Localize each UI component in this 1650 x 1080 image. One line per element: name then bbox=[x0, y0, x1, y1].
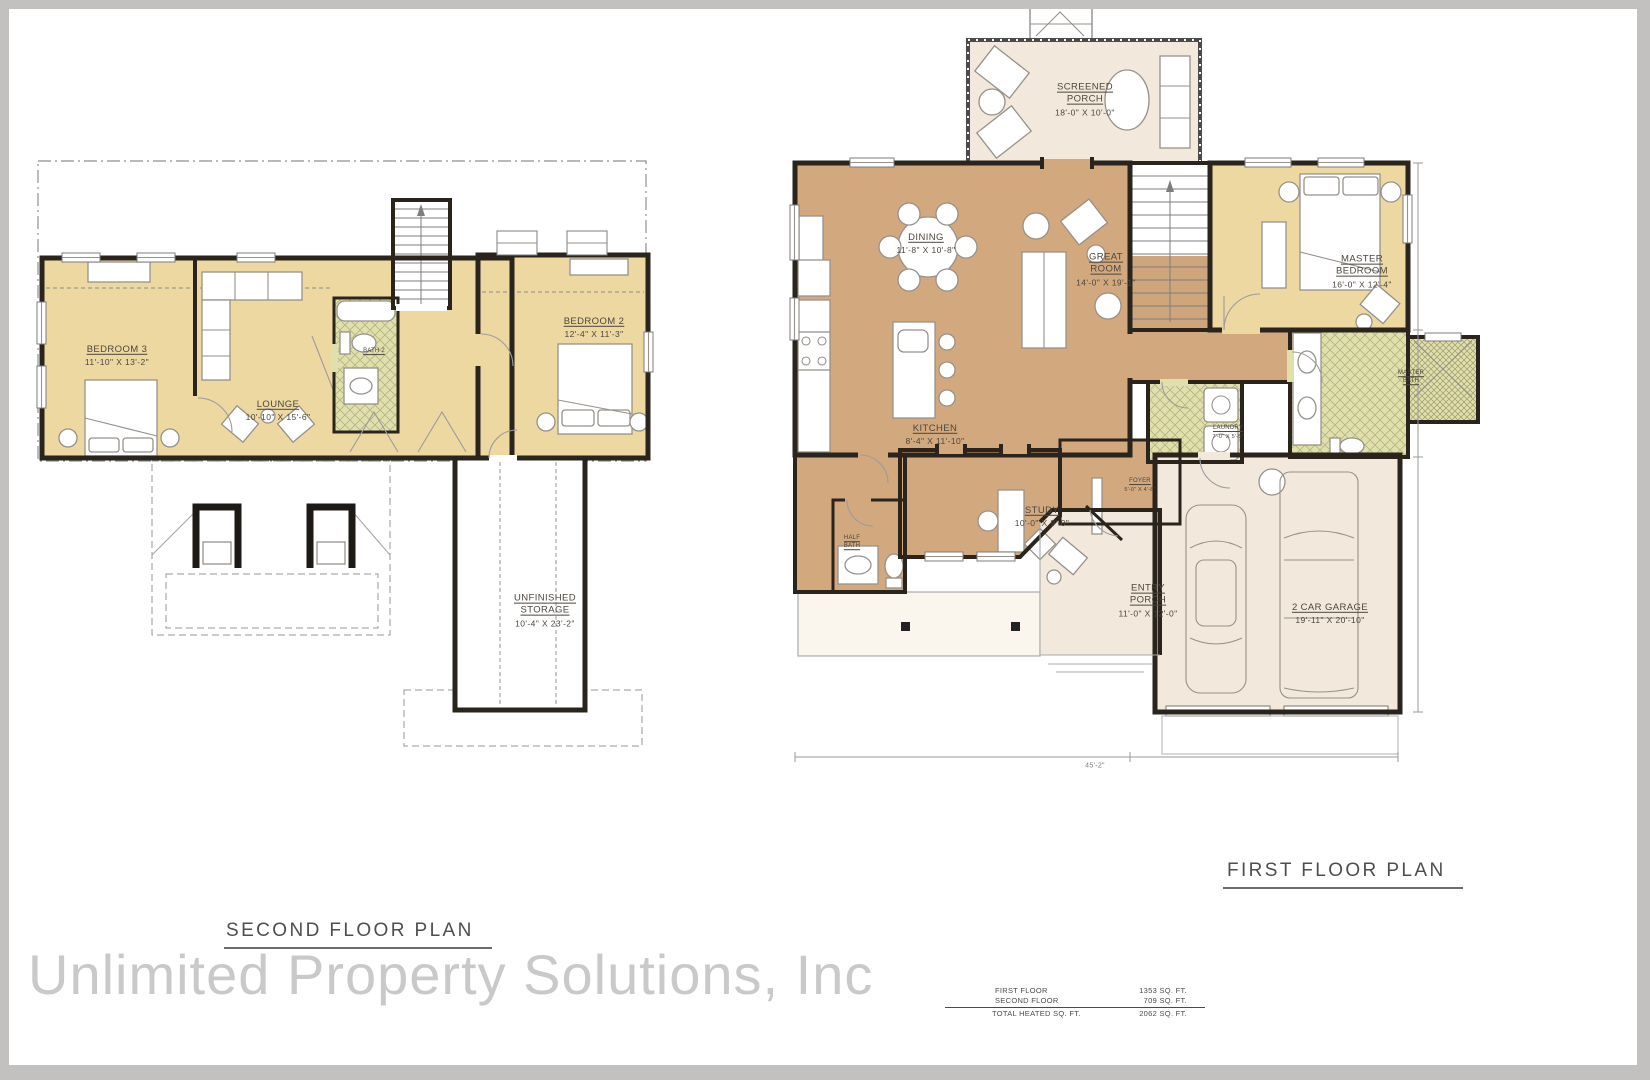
room-name: BEDROOM 2 bbox=[564, 316, 625, 328]
room-dims: 5'-0" X 4'-8" bbox=[1124, 487, 1155, 494]
first-floor-plan-drawing bbox=[790, 8, 1478, 762]
room-label-entry-porch: ENTRY PORCH 11'-0" X 12'-0" bbox=[1118, 583, 1178, 620]
room-name: LOUNGE bbox=[257, 399, 300, 411]
room-name: KITCHEN bbox=[913, 423, 958, 435]
room-dims: 7'-0" X 5'-5" bbox=[1212, 434, 1243, 441]
room-label-dining: DINING 11'-8" X 10'-8" bbox=[879, 232, 974, 256]
room-dims: 11'-10" X 13'-2" bbox=[85, 357, 149, 368]
second-floor-plan-drawing bbox=[37, 161, 653, 746]
room-label-half-bath: HALF BATH bbox=[835, 535, 869, 551]
room-label-great-room: GREAT ROOM 14'-0" X 19'-1" bbox=[1074, 252, 1138, 289]
room-label-master-bedroom: MASTER BEDROOM 16'-0" X 12'-4" bbox=[1322, 254, 1402, 291]
room-name: BATH 2 bbox=[363, 348, 385, 356]
room-label-screened-porch: SCREENED PORCH 18'-0" X 10'-0" bbox=[1045, 82, 1125, 119]
room-dims: 8'-4" X 11'-10" bbox=[905, 436, 964, 447]
area-row-label: SECOND FLOOR bbox=[995, 996, 1059, 1006]
room-name: BEDROOM 3 bbox=[87, 344, 148, 356]
room-label-lounge: LOUNGE 10'-10" X 15'-6" bbox=[223, 399, 333, 423]
room-dims: 16'-0" X 12'-4" bbox=[1332, 279, 1392, 290]
room-name: ENTRY PORCH bbox=[1118, 583, 1178, 608]
room-name: MASTER BATH bbox=[1389, 370, 1433, 386]
room-dims: 10'-0" X 9'-0" bbox=[1015, 518, 1070, 529]
room-dims: 19'-11" X 20'-10" bbox=[1295, 615, 1364, 626]
room-label-kitchen: KITCHEN 8'-4" X 11'-10" bbox=[885, 423, 985, 447]
area-row-label: FIRST FLOOR bbox=[995, 986, 1048, 996]
area-table-total-row: TOTAL HEATED SQ. FT. 2062 SQ. FT. bbox=[945, 1009, 1205, 1019]
room-label-laundry: LAUNDRY 7'-0" X 5'-5" bbox=[1198, 425, 1258, 441]
second-floor-title-rule bbox=[224, 947, 492, 949]
room-label-study: STUDY 10'-0" X 9'-0" bbox=[1002, 505, 1082, 529]
first-floor-title: FIRST FLOOR PLAN bbox=[1227, 860, 1446, 882]
room-name: UNFINISHED STORAGE bbox=[504, 593, 586, 618]
area-row-value: 1353 SQ. FT. bbox=[1139, 986, 1187, 996]
area-total-value: 2062 SQ. FT. bbox=[1139, 1009, 1187, 1019]
area-table-divider bbox=[945, 1007, 1205, 1008]
room-dims: 10'-4" X 23'-2" bbox=[515, 618, 575, 629]
room-dims: 10'-10" X 15'-6" bbox=[246, 412, 311, 423]
room-name: DINING bbox=[908, 232, 944, 244]
room-label-2-car-garage: 2 CAR GARAGE 19'-11" X 20'-10" bbox=[1265, 602, 1395, 626]
room-name: MASTER BEDROOM bbox=[1322, 254, 1402, 279]
room-label-bedroom-2: BEDROOM 2 12'-4" X 11'-3" bbox=[539, 316, 649, 340]
room-dims: 11'-8" X 10'-8" bbox=[896, 245, 955, 256]
room-label-unfinished-storage: UNFINISHED STORAGE 10'-4" X 23'-2" bbox=[504, 593, 586, 630]
room-name: GREAT ROOM bbox=[1074, 252, 1138, 277]
room-label-master-bath: MASTER BATH bbox=[1389, 370, 1433, 386]
floor-plan-drawing: .wall{fill:none;stroke:#2a241d;stroke-wi… bbox=[0, 0, 1650, 1080]
room-dims: 11'-0" X 12'-0" bbox=[1118, 608, 1177, 619]
room-name: LAUNDRY bbox=[1213, 425, 1243, 433]
dimension-label-bottom: 45'-2" bbox=[1085, 763, 1105, 770]
floor-plan-sheet: .wall{fill:none;stroke:#2a241d;stroke-wi… bbox=[0, 0, 1650, 1080]
area-table-row: FIRST FLOOR 1353 SQ. FT. bbox=[945, 986, 1205, 996]
room-label-bedroom-3: BEDROOM 3 11'-10" X 13'-2" bbox=[62, 344, 172, 368]
room-name: 2 CAR GARAGE bbox=[1292, 602, 1368, 614]
watermark-text: Unlimited Property Solutions, Inc bbox=[28, 942, 873, 1007]
area-row-value: 709 SQ. FT. bbox=[1144, 996, 1187, 1006]
room-dims: 12'-4" X 11'-3" bbox=[564, 329, 623, 340]
area-table: FIRST FLOOR 1353 SQ. FT. SECOND FLOOR 70… bbox=[945, 986, 1205, 1019]
room-label-foyer: FOYER 5'-0" X 4'-8" bbox=[1114, 478, 1166, 494]
room-label-bath-2: BATH 2 bbox=[354, 348, 394, 356]
room-dims: 18'-0" X 10'-0" bbox=[1055, 107, 1115, 118]
area-table-row: SECOND FLOOR 709 SQ. FT. bbox=[945, 996, 1205, 1006]
area-total-label: TOTAL HEATED SQ. FT. bbox=[992, 1009, 1081, 1019]
first-floor-title-rule bbox=[1223, 887, 1463, 889]
room-name: STUDY bbox=[1025, 505, 1059, 517]
room-name: FOYER bbox=[1129, 478, 1151, 486]
second-floor-title: SECOND FLOOR PLAN bbox=[226, 920, 474, 942]
room-dims: 14'-0" X 19'-1" bbox=[1076, 277, 1136, 288]
room-name: HALF BATH bbox=[835, 535, 869, 551]
room-name: SCREENED PORCH bbox=[1045, 82, 1125, 107]
